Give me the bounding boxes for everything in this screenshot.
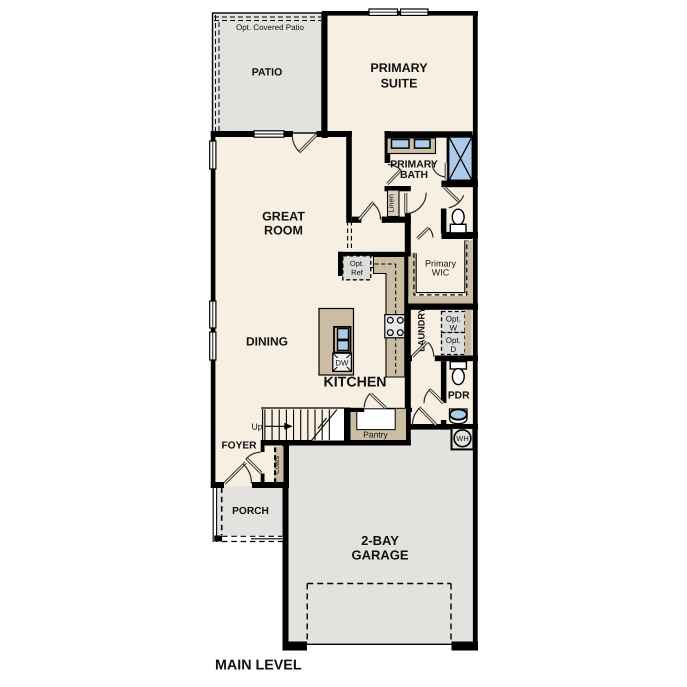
svg-text:Opt.: Opt.	[446, 315, 461, 324]
svg-text:Coats: Coats	[274, 455, 281, 474]
svg-text:Linen: Linen	[386, 194, 395, 212]
svg-text:GARAGE: GARAGE	[351, 548, 408, 563]
svg-text:Opt.: Opt.	[350, 259, 364, 268]
svg-text:FOYER: FOYER	[221, 440, 257, 451]
svg-text:WIC: WIC	[432, 268, 450, 278]
svg-text:Opt. Covered Patio: Opt. Covered Patio	[236, 23, 305, 32]
svg-text:DINING: DINING	[246, 334, 288, 348]
svg-text:GREAT: GREAT	[262, 210, 305, 224]
svg-text:SUITE: SUITE	[381, 77, 418, 91]
svg-text:ROOM: ROOM	[264, 224, 303, 238]
svg-text:DW: DW	[335, 359, 349, 368]
svg-text:PATIO: PATIO	[252, 66, 283, 78]
svg-text:PORCH: PORCH	[232, 506, 269, 517]
svg-text:PDR: PDR	[448, 391, 470, 402]
svg-text:Pantry: Pantry	[363, 430, 388, 440]
svg-text:Up: Up	[251, 421, 262, 431]
svg-text:PRIMARY: PRIMARY	[370, 61, 428, 75]
svg-text:WH: WH	[456, 434, 469, 443]
svg-text:W: W	[450, 324, 458, 333]
svg-text:2-BAY: 2-BAY	[361, 533, 399, 548]
svg-text:D: D	[450, 345, 456, 354]
svg-text:Opt.: Opt.	[446, 336, 461, 345]
svg-text:MAIN LEVEL: MAIN LEVEL	[215, 657, 302, 673]
svg-text:BATH: BATH	[400, 170, 428, 181]
svg-text:Ref: Ref	[351, 268, 364, 277]
svg-text:PRIMARY: PRIMARY	[390, 159, 438, 170]
svg-text:KITCHEN: KITCHEN	[323, 375, 386, 391]
